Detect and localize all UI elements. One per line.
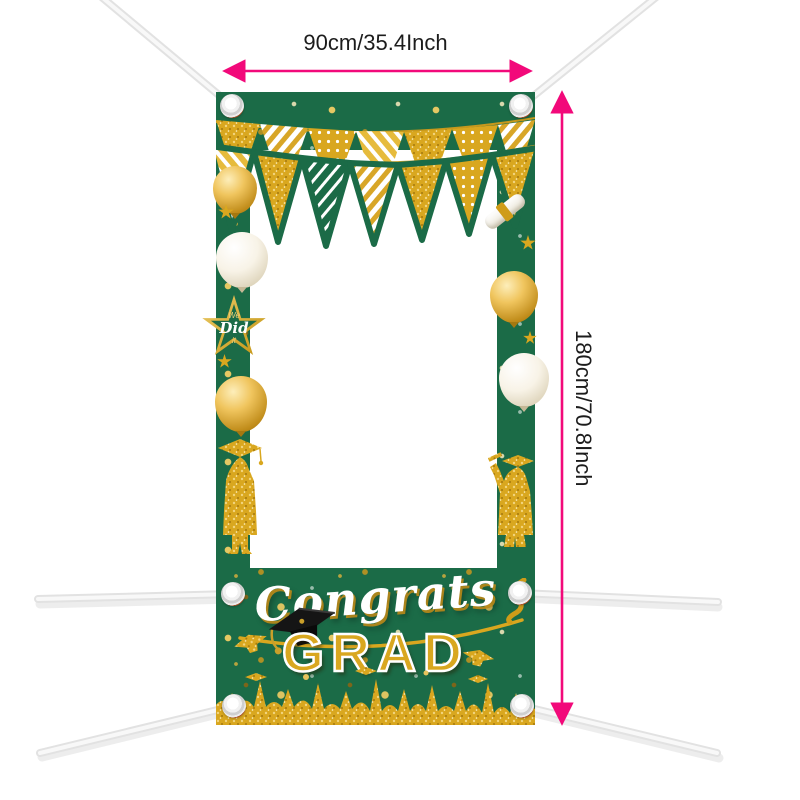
we-did-it-star-badge: We Did it — [201, 295, 267, 361]
graduate-silhouette-right-icon — [488, 445, 540, 551]
grommet-top-left — [220, 94, 244, 118]
width-dimension-label: 90cm/35.4Inch — [216, 30, 535, 56]
rope-bottom-right — [522, 706, 719, 758]
height-dimension-label: 180cm/70.8Inch — [566, 92, 600, 725]
grommet-bottom-left — [222, 694, 246, 718]
rope-middle-left — [38, 594, 233, 604]
grommet-bottom-right — [510, 694, 534, 718]
rope-middle-right — [520, 593, 718, 607]
grommet-top-right — [509, 94, 533, 118]
graduate-silhouette-left-icon — [216, 437, 264, 557]
grommet-middle-right — [508, 581, 532, 605]
crowd-silhouette-icon — [216, 663, 535, 725]
grad-photo-booth-banner: We Did it Congrats — [216, 92, 535, 725]
bunting-flags-icon — [216, 92, 535, 252]
rope-bottom-left — [40, 706, 234, 757]
product-image: We Did it Congrats — [0, 0, 800, 800]
rope-top-right — [521, 0, 660, 106]
star-text-bottom: it — [232, 337, 236, 345]
star-text-middle: Did — [219, 321, 248, 336]
grommet-middle-left — [221, 582, 245, 606]
rope-top-left — [98, 0, 232, 106]
